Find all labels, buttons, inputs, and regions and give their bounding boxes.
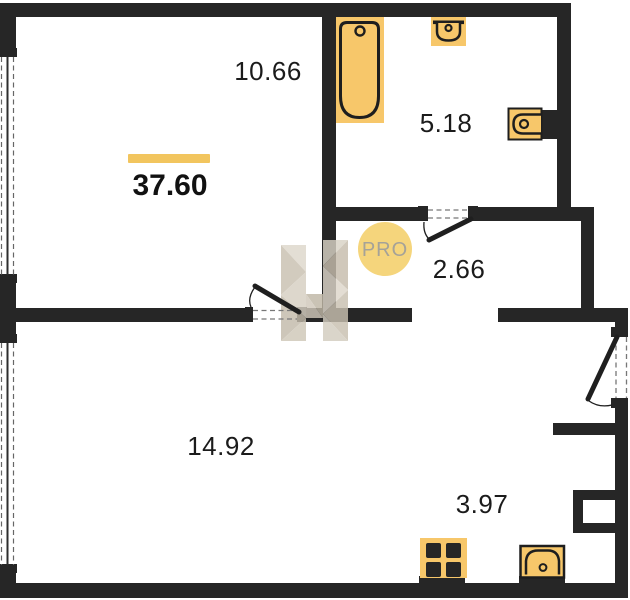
wall-bathroom-right [557, 3, 571, 221]
watermark-pro-badge: PRO [358, 222, 412, 276]
door-bathroom [424, 210, 471, 240]
shaft-wall-bottom [573, 523, 622, 533]
sill-stub [0, 48, 17, 57]
door-leaf [429, 219, 471, 240]
window-bedroom [2, 57, 14, 275]
wall-entry-stub [553, 423, 628, 435]
door-leaf [588, 337, 617, 399]
floorplan: PRO 10.66 5.18 2.66 14.92 3.97 37.60 [0, 0, 630, 600]
room-area-label-bedroom: 10.66 [234, 58, 302, 85]
wall-hall-right [581, 207, 594, 320]
room-area-label-kitchen: 3.97 [456, 491, 509, 518]
sill-stub [0, 274, 17, 283]
door-post [611, 327, 628, 337]
wall-bathroom-bottom-b [478, 207, 594, 221]
wash-basin-icon [431, 17, 466, 46]
door-swing-arc [589, 401, 612, 406]
wall-bathroom-bottom-a [322, 207, 418, 221]
room-area-label-bathroom: 5.18 [420, 110, 473, 137]
wall-bottom [0, 583, 628, 598]
sill-stub [0, 564, 17, 573]
door-swing-arc [424, 222, 429, 239]
wall-top [3, 3, 570, 17]
wall-mid-a [16, 308, 245, 322]
room-area-label-living: 14.92 [187, 433, 255, 460]
total-area-accent-bar [128, 154, 210, 163]
door-swing-arc [250, 287, 255, 307]
floorplan-drawing: PRO [0, 0, 630, 600]
door-post [418, 206, 428, 221]
wall-left-mid [0, 275, 16, 343]
kitchen-sink-icon [519, 546, 565, 585]
toilet-icon [509, 109, 558, 140]
stove-icon [419, 538, 467, 585]
window-living [2, 343, 14, 565]
total-area-label: 37.60 [132, 169, 207, 203]
watermark-logo [281, 240, 348, 341]
bathtub-icon [336, 17, 384, 123]
door-entrance [588, 337, 627, 406]
pro-badge-text: PRO [362, 239, 408, 261]
room-area-label-hallway: 2.66 [433, 256, 486, 283]
door-post [245, 307, 253, 322]
wall-mid-c [498, 308, 628, 322]
sill-stub [0, 334, 17, 343]
